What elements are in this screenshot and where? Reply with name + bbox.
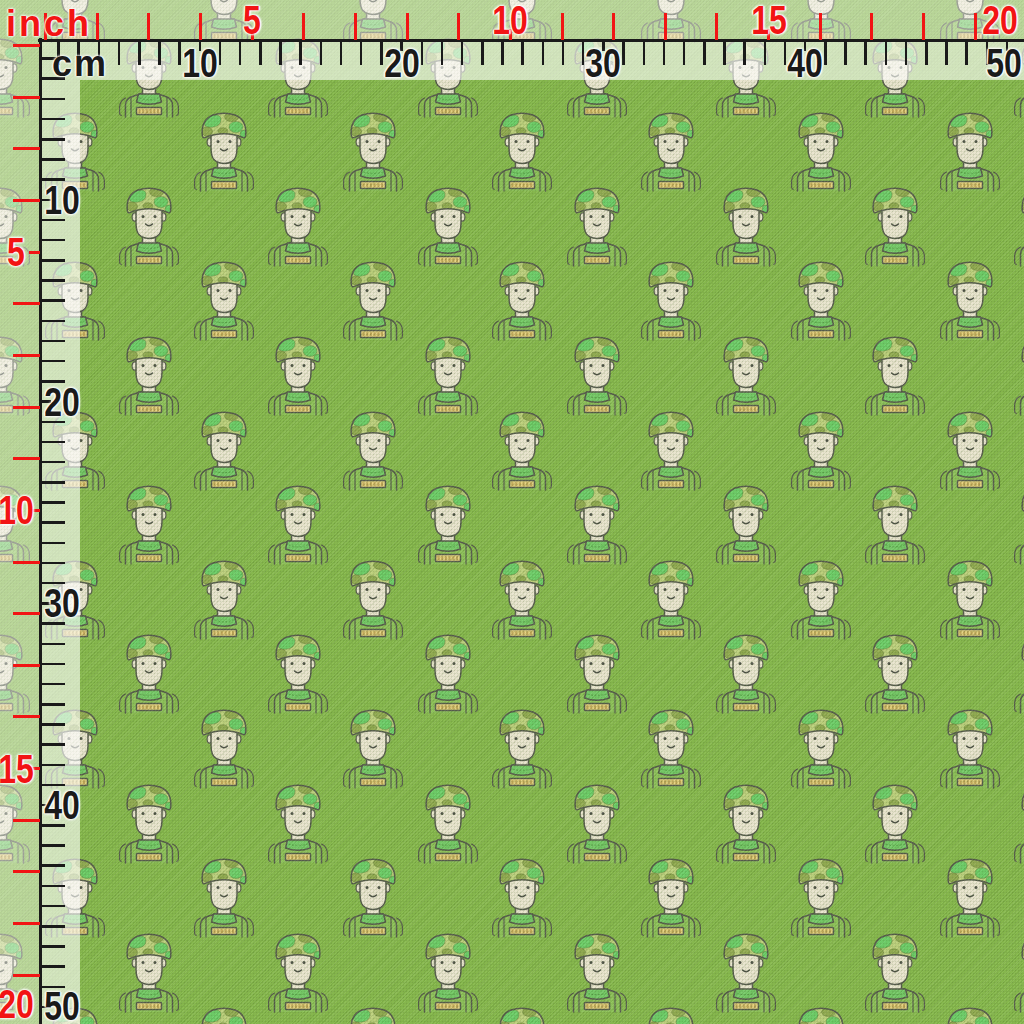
soldier-motif — [343, 1006, 403, 1024]
soldier-motif — [865, 783, 925, 863]
soldier-motif — [716, 335, 776, 415]
soldier-motif — [1014, 633, 1024, 713]
soldier-motif — [343, 559, 403, 639]
soldier-motif — [567, 186, 627, 266]
soldier-motif — [865, 633, 925, 713]
soldier-motif — [865, 37, 925, 117]
soldier-motif — [119, 335, 179, 415]
soldier-motif — [194, 708, 254, 788]
soldier-motif — [418, 37, 478, 117]
soldier-motif — [641, 559, 701, 639]
soldier-motif — [418, 335, 478, 415]
soldier-motif — [268, 186, 328, 266]
soldier-motif — [0, 932, 30, 1012]
soldier-motif — [567, 37, 627, 117]
soldier-motif — [492, 260, 552, 340]
soldier-motif — [940, 708, 1000, 788]
soldier-motif — [492, 0, 552, 42]
soldier-motif — [791, 111, 851, 191]
soldier-motif — [418, 633, 478, 713]
fabric-pattern-preview: 5101520102030405051015201020304050 inch … — [0, 0, 1024, 1024]
soldier-motif — [0, 186, 30, 266]
soldier-motif — [343, 0, 403, 42]
soldier-motif — [492, 708, 552, 788]
soldier-motif — [716, 484, 776, 564]
soldier-motif — [567, 335, 627, 415]
soldier-motif — [641, 857, 701, 937]
soldier-motif — [343, 260, 403, 340]
soldier-motif — [194, 1006, 254, 1024]
soldier-motif — [45, 857, 105, 937]
soldier-motif — [791, 708, 851, 788]
soldier-motif — [45, 260, 105, 340]
soldier-motif — [45, 111, 105, 191]
inch-unit-label: inch — [6, 6, 92, 42]
soldier-motif — [641, 1006, 701, 1024]
soldier-motif — [865, 186, 925, 266]
soldier-motif — [1014, 783, 1024, 863]
soldier-motif — [0, 633, 30, 713]
cm-unit-label: cm — [52, 46, 108, 82]
soldier-motif — [641, 708, 701, 788]
soldier-motif — [791, 0, 851, 42]
soldier-motif — [865, 335, 925, 415]
soldier-motif — [418, 186, 478, 266]
soldier-motif — [492, 111, 552, 191]
soldier-motif — [343, 708, 403, 788]
soldier-motif — [194, 410, 254, 490]
soldier-motif — [194, 559, 254, 639]
soldier-motif — [940, 410, 1000, 490]
soldier-motif — [343, 410, 403, 490]
soldier-motif — [45, 559, 105, 639]
soldier-motif — [268, 335, 328, 415]
soldier-motif — [940, 111, 1000, 191]
soldier-motif — [492, 857, 552, 937]
soldier-motif — [641, 260, 701, 340]
fabric-pattern — [0, 0, 1024, 1024]
soldier-motif — [268, 484, 328, 564]
soldier-motif — [716, 932, 776, 1012]
soldier-motif — [1014, 932, 1024, 1012]
soldier-motif — [940, 1006, 1000, 1024]
soldier-motif — [492, 559, 552, 639]
soldier-motif — [0, 484, 30, 564]
soldier-motif — [119, 633, 179, 713]
soldier-motif — [1014, 335, 1024, 415]
soldier-motif — [791, 260, 851, 340]
soldier-motif — [1014, 186, 1024, 266]
soldier-motif — [791, 857, 851, 937]
soldier-motif — [268, 932, 328, 1012]
soldier-motif — [1014, 484, 1024, 564]
soldier-motif — [45, 410, 105, 490]
soldier-motif — [940, 559, 1000, 639]
soldier-motif — [119, 932, 179, 1012]
soldier-motif — [119, 783, 179, 863]
soldier-motif — [268, 783, 328, 863]
soldier-motif — [716, 37, 776, 117]
soldier-motif — [119, 186, 179, 266]
soldier-motif — [418, 783, 478, 863]
soldier-motif — [119, 484, 179, 564]
soldier-motif — [791, 1006, 851, 1024]
soldier-motif — [343, 111, 403, 191]
soldier-motif — [567, 484, 627, 564]
soldier-motif — [0, 335, 30, 415]
soldier-motif — [45, 708, 105, 788]
soldier-motif — [791, 559, 851, 639]
soldier-motif — [194, 857, 254, 937]
soldier-motif — [567, 633, 627, 713]
soldier-motif — [567, 932, 627, 1012]
soldier-motif — [940, 0, 1000, 42]
soldier-motif — [268, 633, 328, 713]
soldier-motif — [641, 0, 701, 42]
soldier-motif — [45, 1006, 105, 1024]
soldier-motif — [194, 260, 254, 340]
soldier-motif — [194, 111, 254, 191]
soldier-motif — [641, 410, 701, 490]
soldier-motif — [865, 932, 925, 1012]
soldier-motif — [343, 857, 403, 937]
soldier-motif — [0, 783, 30, 863]
soldier-motif — [716, 186, 776, 266]
soldier-motif — [119, 37, 179, 117]
soldier-motif — [418, 484, 478, 564]
soldier-motif — [940, 260, 1000, 340]
soldier-motif — [641, 111, 701, 191]
soldier-motif — [492, 410, 552, 490]
soldier-motif — [194, 0, 254, 42]
soldier-motif — [418, 932, 478, 1012]
soldier-motif — [716, 633, 776, 713]
soldier-motif — [567, 783, 627, 863]
soldier-motif — [865, 484, 925, 564]
soldier-motif — [791, 410, 851, 490]
soldier-motif — [940, 857, 1000, 937]
soldier-motif — [1014, 37, 1024, 117]
soldier-motif — [268, 37, 328, 117]
soldier-motif — [492, 1006, 552, 1024]
soldier-motif — [716, 783, 776, 863]
soldier-motif — [0, 37, 30, 117]
